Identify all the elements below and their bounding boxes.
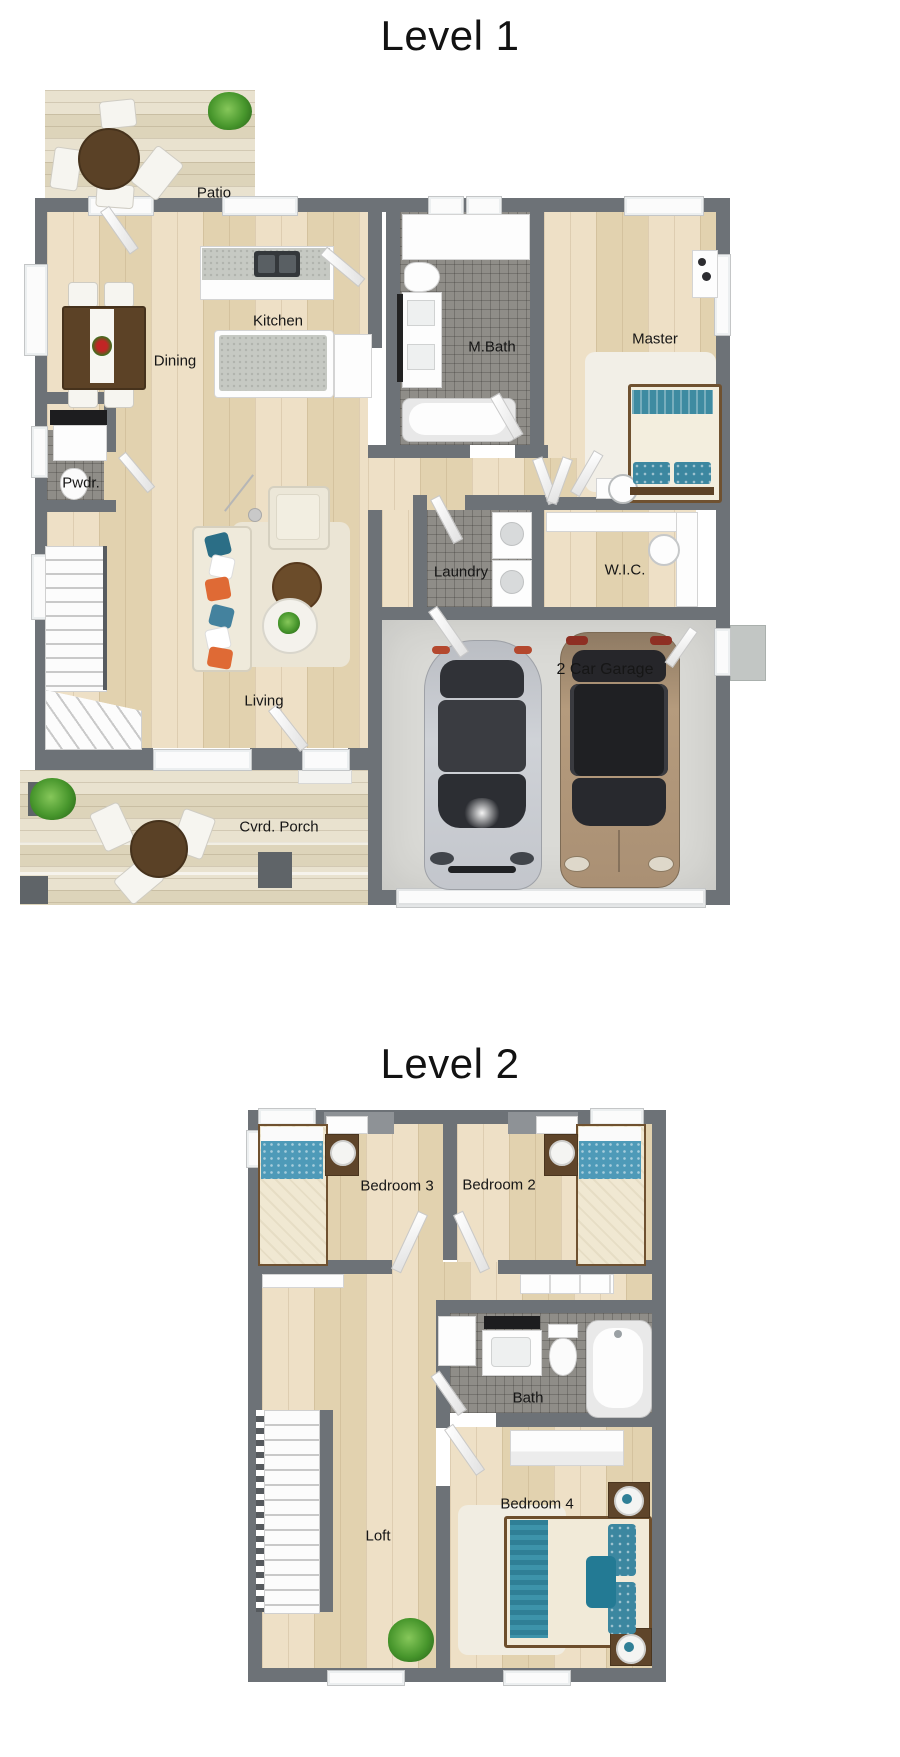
loft-window-south: [327, 1670, 405, 1686]
silver-car-rear-window: [440, 660, 524, 698]
linen-closet: [520, 1274, 614, 1294]
kitchen-window: [222, 196, 298, 216]
silver-car-roof: [438, 700, 526, 772]
armchair-cushion: [276, 494, 320, 540]
tan-suv-roof: [570, 684, 668, 776]
porch-plant: [30, 778, 76, 820]
sink-basin: [258, 255, 275, 273]
room-label-mbath: M.Bath: [468, 339, 516, 356]
floor-lamp: [248, 508, 262, 522]
wall-living-garage: [368, 510, 382, 905]
silver-car-headlight: [430, 852, 454, 865]
washer-door: [500, 522, 524, 546]
staircase-l2: [264, 1410, 320, 1614]
silver-car-shine: [462, 798, 502, 828]
master-pillow: [674, 462, 711, 484]
bedroom4-blanket: [510, 1520, 548, 1638]
garage-side-stoop: [730, 625, 766, 681]
wall-living-south: [250, 748, 302, 770]
dryer-door: [500, 570, 524, 594]
silver-car-taillight: [514, 646, 532, 654]
tan-suv-taillight: [650, 636, 672, 645]
bath-toilet-tank: [548, 1324, 578, 1338]
mbath-toilet: [404, 262, 440, 292]
dining-centerpiece-flowers: [92, 336, 112, 356]
island-countertop: [219, 335, 327, 391]
bath-cabinet: [438, 1316, 476, 1366]
tan-suv-headlight: [648, 856, 674, 872]
desk-item: [698, 258, 706, 266]
l2-wall-bath-north: [436, 1300, 666, 1313]
sofa-pillow-orange: [204, 576, 231, 602]
wic-basket: [648, 534, 680, 566]
wall-laundry-wic: [530, 495, 544, 620]
room-label-loft: Loft: [365, 1528, 390, 1545]
wall-living-south: [35, 748, 153, 770]
patio-table: [78, 128, 140, 190]
hall-closet-floor: [382, 510, 413, 607]
master-pillow: [633, 462, 670, 484]
bath-toilet: [549, 1338, 577, 1376]
bedroom4-lamp-accent: [622, 1494, 632, 1504]
bedroom2-pillow: [579, 1127, 641, 1141]
silver-car-grille: [448, 866, 516, 873]
room-label-wic: W.I.C.: [605, 562, 646, 579]
bedroom4-window-south: [503, 1670, 571, 1686]
room-label-bedroom3: Bedroom 3: [360, 1178, 433, 1195]
wall-mbath-master: [530, 198, 544, 445]
dining-chair: [104, 282, 134, 308]
bedroom2-lamp: [549, 1140, 575, 1166]
stair-railing-l1: [103, 546, 107, 690]
room-label-dining: Dining: [154, 353, 197, 370]
room-label-patio: Patio: [197, 185, 231, 202]
tan-suv-hood-line: [618, 830, 620, 872]
l2-wall-bottom: [248, 1668, 666, 1682]
desk-item: [702, 272, 711, 281]
room-label-garage: 2 Car Garage: [557, 661, 654, 679]
room-label-master: Master: [632, 331, 678, 348]
tan-suv-headlight: [564, 856, 590, 872]
mbath-mirror: [397, 294, 403, 382]
room-label-kitchen: Kitchen: [253, 313, 303, 330]
master-bed-blanket: [632, 390, 713, 414]
bath-mirror: [484, 1316, 540, 1329]
coffee-table-plant: [278, 612, 300, 634]
wall-laundry-left: [413, 495, 427, 620]
garage-overhead-door: [396, 888, 706, 908]
l2-wall-right: [652, 1110, 666, 1682]
room-label-bedroom2: Bedroom 2: [462, 1177, 535, 1194]
l2-wall-bedroom-divider: [443, 1110, 457, 1260]
mbath-window: [428, 196, 464, 216]
floorplan-page: Level 1 Level 2 Patio: [0, 0, 900, 1757]
bedroom4-throw: [586, 1556, 616, 1608]
patio-chair: [99, 98, 138, 130]
bath-tub-basin: [593, 1328, 643, 1408]
wall-garage-north: [368, 607, 716, 620]
silver-car-headlight: [510, 852, 534, 865]
level-1-title: Level 1: [0, 12, 900, 60]
room-label-laundry: Laundry: [434, 564, 488, 581]
tan-suv-windshield: [572, 778, 666, 826]
wall-hall-north: [368, 445, 470, 458]
mbath-closet: [402, 214, 530, 260]
porch-pillar: [20, 876, 48, 904]
pwdr-mirror: [50, 410, 107, 425]
wall-hall-north: [515, 445, 548, 458]
room-label-porch: Cvrd. Porch: [239, 819, 318, 836]
room-label-pwdr: Pwdr.: [62, 475, 100, 492]
room-label-bedroom4: Bedroom 4: [500, 1496, 573, 1513]
loft-plant: [388, 1618, 434, 1662]
mbath-sink: [407, 300, 435, 326]
level-2-title: Level 2: [0, 1040, 900, 1088]
room-label-bath: Bath: [513, 1390, 544, 1407]
stairwell-wall: [318, 1410, 333, 1612]
living-window-south: [153, 749, 252, 771]
l2-wall-bedroom4-west: [436, 1486, 450, 1668]
wall-kitchen-divider: [368, 198, 382, 348]
bedroom2-closet-door: [536, 1116, 578, 1134]
staircase-l1: [45, 546, 107, 692]
porch-pillar: [258, 852, 292, 888]
bath-tub-faucet: [614, 1330, 622, 1338]
mbath-window: [466, 196, 502, 216]
bedroom3-lamp: [330, 1140, 356, 1166]
silver-car-taillight: [432, 646, 450, 654]
bedroom3-pillow: [261, 1127, 323, 1141]
master-headboard: [630, 487, 714, 495]
pwdr-vanity: [53, 425, 107, 461]
dining-chair: [68, 282, 98, 308]
wic-shelf: [546, 512, 696, 532]
front-door-opening: [302, 749, 350, 771]
wic-shelf-side: [676, 512, 698, 607]
hall-sill: [262, 1274, 344, 1288]
wall-laundry-north: [413, 495, 427, 510]
porch-step-edge: [20, 872, 368, 875]
bedroom4-lamp-accent: [624, 1642, 634, 1652]
bedroom3-blanket: [261, 1141, 323, 1179]
bath-sink: [491, 1337, 531, 1367]
kitchen-cabinet: [334, 334, 372, 398]
bedroom2-blanket: [579, 1141, 641, 1179]
garage-side-door: [714, 628, 731, 676]
bedroom4-closet: [510, 1430, 624, 1466]
pwdr-window: [31, 426, 48, 478]
sink-basin: [279, 255, 296, 273]
tan-suv-taillight: [566, 636, 588, 645]
dining-bay-window: [24, 264, 48, 356]
stair-railing-l2: [256, 1410, 264, 1612]
mbath-tub-basin: [409, 403, 507, 435]
sofa-pillow-orange: [206, 646, 233, 670]
patio-plant: [208, 92, 252, 130]
wall-pwdr-south: [45, 500, 116, 512]
mbath-sink: [407, 344, 435, 370]
room-label-living: Living: [244, 693, 283, 710]
front-door-mat: [298, 770, 352, 784]
master-window-north: [624, 196, 704, 216]
porch-table: [130, 820, 188, 878]
bedroom3-closet-door: [326, 1116, 368, 1134]
